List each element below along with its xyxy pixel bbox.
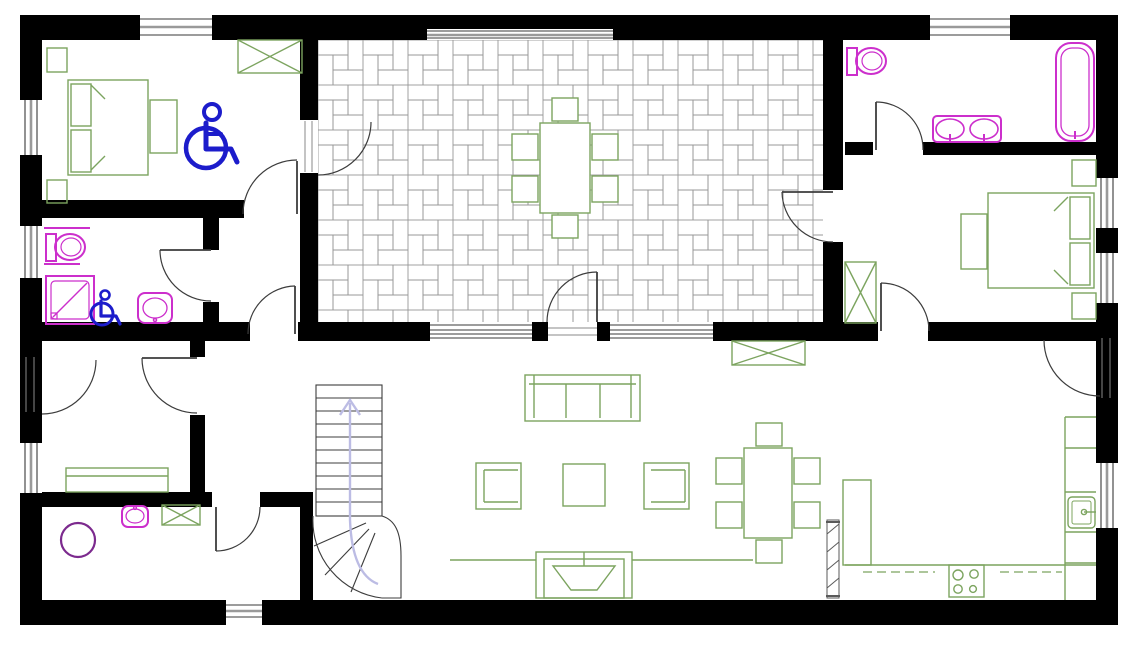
window-study-left — [20, 443, 42, 493]
window-bathroom2-top — [930, 15, 1010, 40]
chair — [756, 540, 782, 563]
glazed-panel-hall-b — [610, 322, 713, 341]
window-kitchen-right — [1096, 463, 1118, 528]
chair — [512, 134, 538, 160]
glazed-panel-hall-a — [430, 322, 532, 341]
chair — [716, 502, 742, 528]
floor-plan-canvas — [0, 0, 1138, 646]
washbasin-small-icon — [122, 506, 148, 527]
chair — [716, 458, 742, 484]
chair — [794, 502, 820, 528]
window-bedroom1-top — [140, 15, 212, 40]
washbasin-icon — [138, 293, 172, 323]
window-hall-top-strip — [427, 29, 613, 40]
dining-table — [540, 123, 590, 213]
chair — [592, 176, 618, 202]
window-utility-bottom — [226, 600, 262, 625]
floor-plan — [0, 0, 1138, 646]
chair — [552, 215, 578, 238]
chair — [512, 176, 538, 202]
radiator-icon — [826, 520, 840, 598]
chair — [756, 423, 782, 446]
window-bedroom2-right-a — [1096, 178, 1118, 228]
chair — [552, 98, 578, 121]
chair — [592, 134, 618, 160]
window-bedroom2-right-b — [1096, 253, 1118, 303]
dining-table — [744, 448, 792, 538]
window-bedroom1-left — [20, 100, 42, 155]
chair — [794, 458, 820, 484]
window-bathroom1-left — [20, 226, 42, 278]
